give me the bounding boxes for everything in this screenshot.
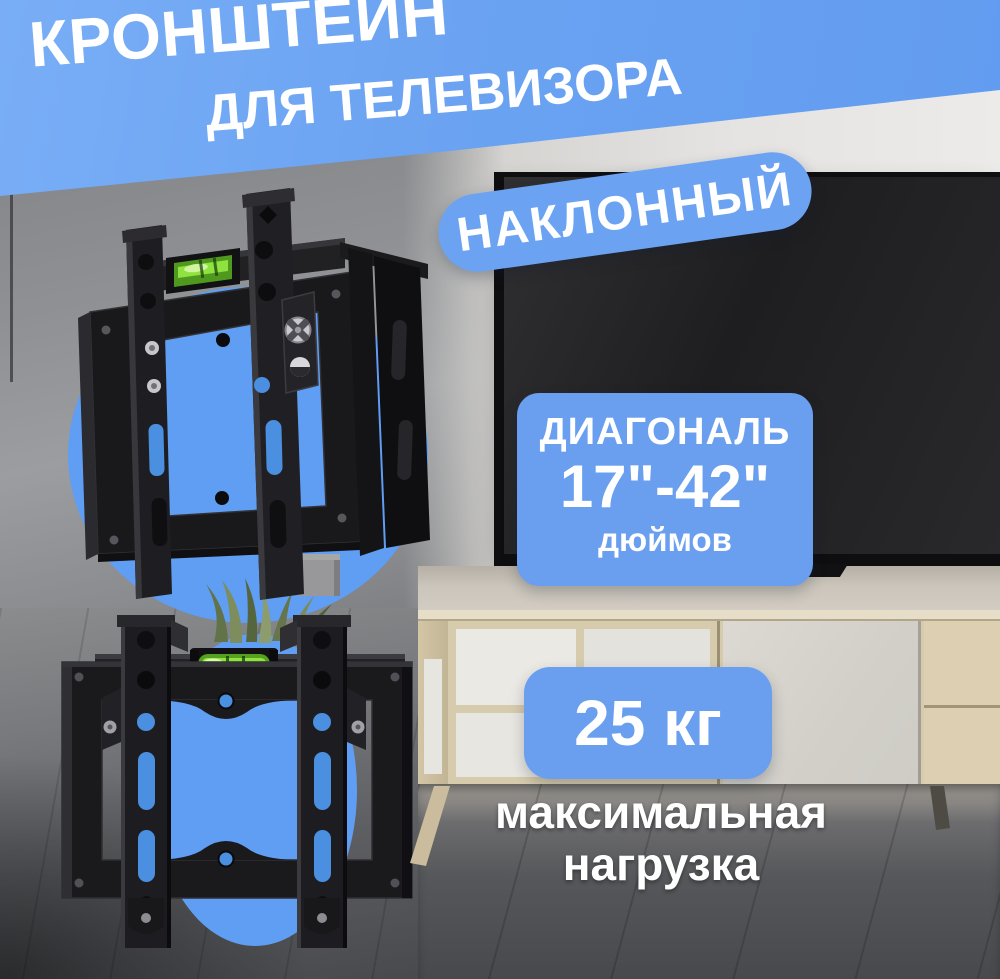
max-load-caption-line1: максимальная [441, 786, 881, 838]
drawer-seam [924, 705, 1000, 708]
diagonal-unit: дюймов [517, 520, 813, 560]
tv-stand-top [418, 610, 1000, 621]
diagonal-card: ДИАГОНАЛЬ 17"-42" дюймов [517, 393, 813, 586]
max-load-caption: максимальная нагрузка [441, 786, 881, 890]
max-load-card: 25 кг [524, 667, 772, 779]
diagonal-title: ДИАГОНАЛЬ [517, 410, 813, 454]
tv-stand-drawers-right [924, 621, 1000, 786]
photo-circle-top [68, 287, 428, 623]
tv-stand-left-inset [424, 659, 442, 774]
max-load-caption-line2: нагрузка [441, 838, 881, 890]
max-load-value: 25 кг [574, 686, 722, 760]
tv-stand-left-panel [418, 621, 448, 786]
photo-circle-bottom [153, 634, 357, 946]
diagonal-range: 17"-42" [517, 454, 813, 520]
promo-image: КРОНШТЕЙН ДЛЯ ТЕЛЕВИЗОРА НАКЛОННЫЙ ДИАГО… [0, 0, 1000, 979]
